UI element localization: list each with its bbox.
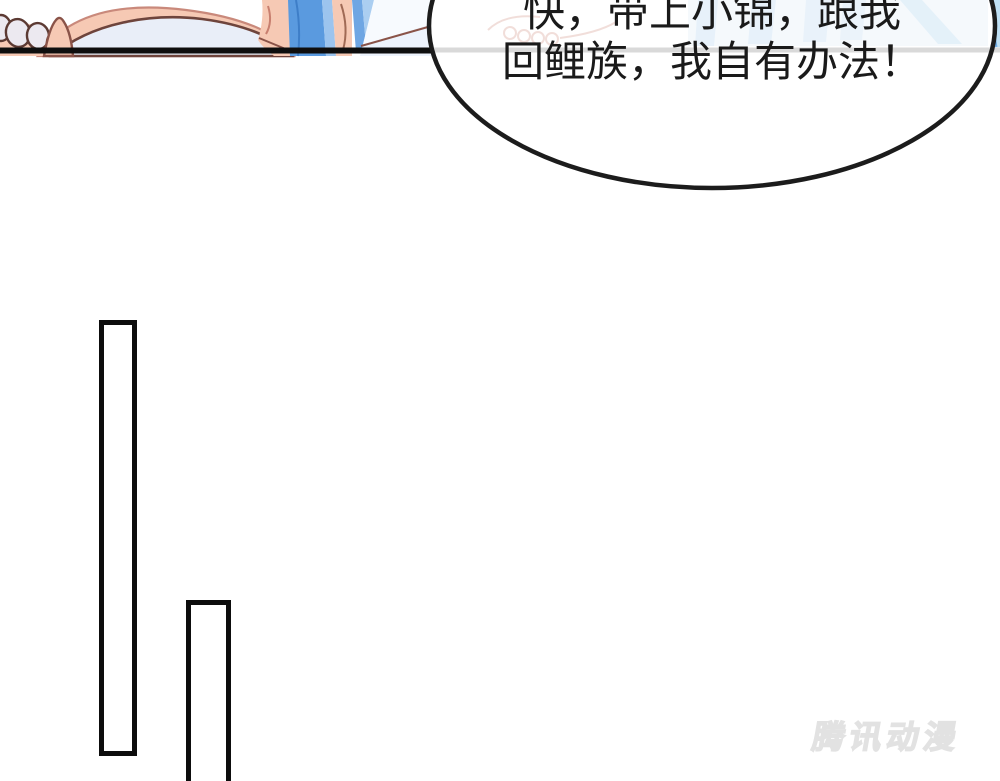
panel-frame-tall <box>99 320 137 756</box>
panel-border-line <box>0 48 437 54</box>
speech-bubble-text: 快，带上小锦，跟我 回鲤族，我自有办法！ <box>432 0 992 87</box>
speech-line-2: 回鲤族，我自有办法！ <box>432 37 992 87</box>
tencent-comics-watermark: 腾讯动漫 <box>809 714 997 760</box>
comic-page: 快，带上小锦，跟我 回鲤族，我自有办法！ 腾讯动漫 <box>0 0 1000 781</box>
speech-line-1: 快，带上小锦，跟我 <box>432 0 992 37</box>
panel-frame-short <box>186 600 231 781</box>
